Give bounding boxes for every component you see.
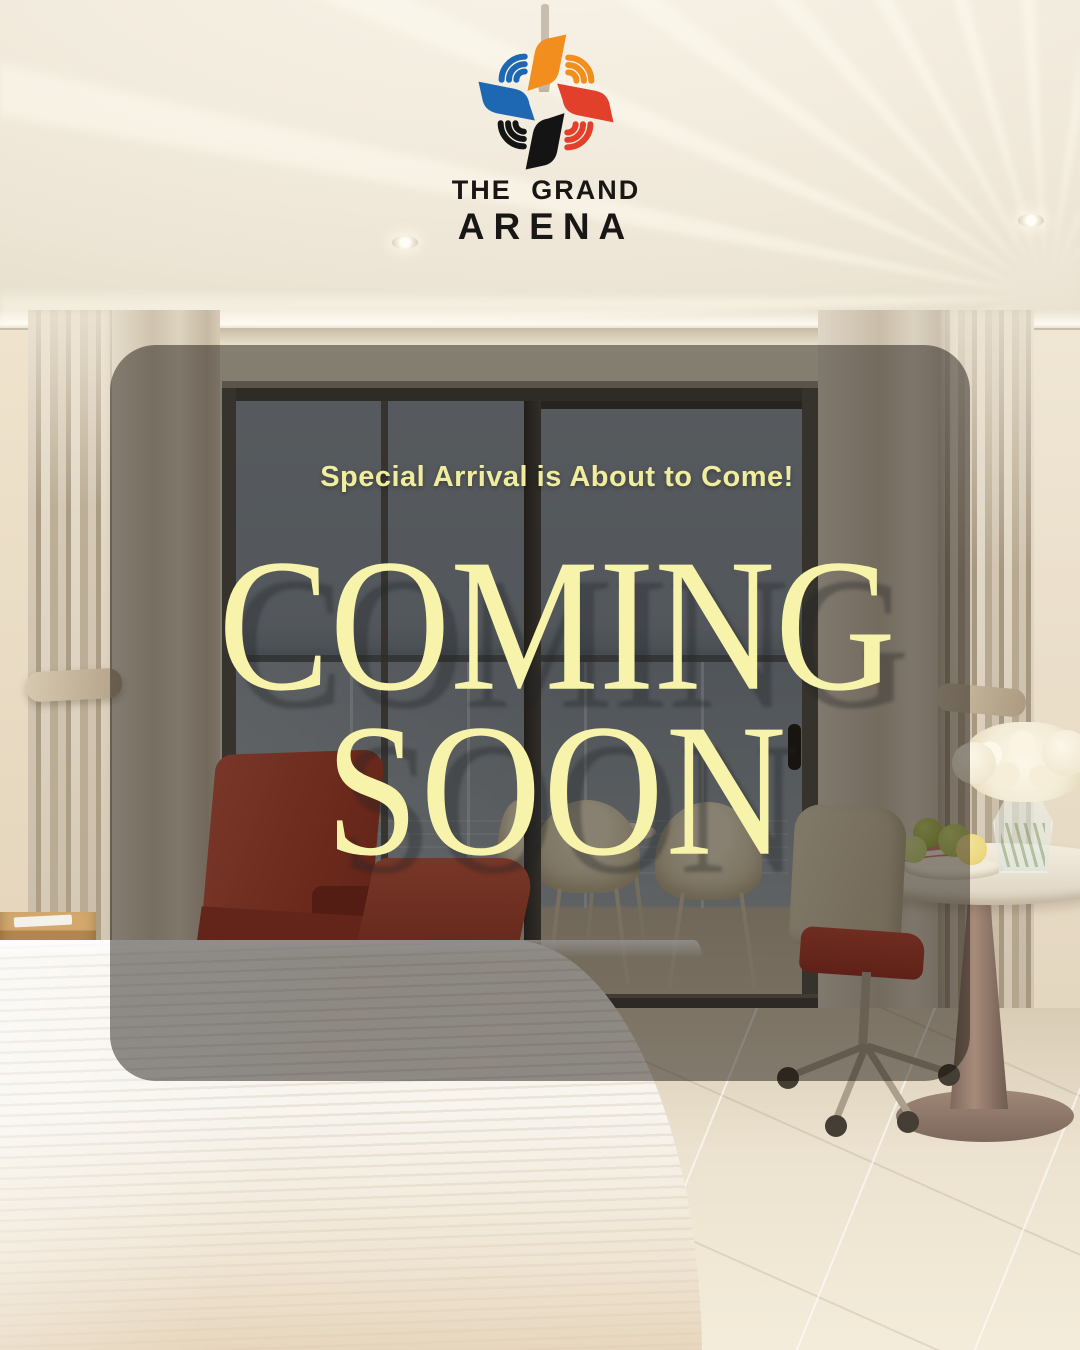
curtain-left bbox=[28, 310, 120, 970]
coming-soon-poster: Special Arrival is About to Come! COMING… bbox=[0, 0, 1080, 1350]
logo-petal-right bbox=[557, 84, 613, 148]
brand-logo: THE GRAND ARENA bbox=[12, 28, 1080, 248]
curtain-tieback-left bbox=[25, 668, 122, 703]
logo-pinwheel-icon bbox=[472, 28, 620, 176]
logo-petal-top bbox=[528, 34, 592, 90]
overlay-panel bbox=[110, 345, 970, 1081]
logo-petal-bottom bbox=[501, 113, 565, 169]
wordmark-the-grand: THE GRAND bbox=[12, 175, 1080, 206]
logo-petal-left bbox=[478, 57, 534, 121]
wordmark-arena: ARENA bbox=[12, 206, 1080, 248]
